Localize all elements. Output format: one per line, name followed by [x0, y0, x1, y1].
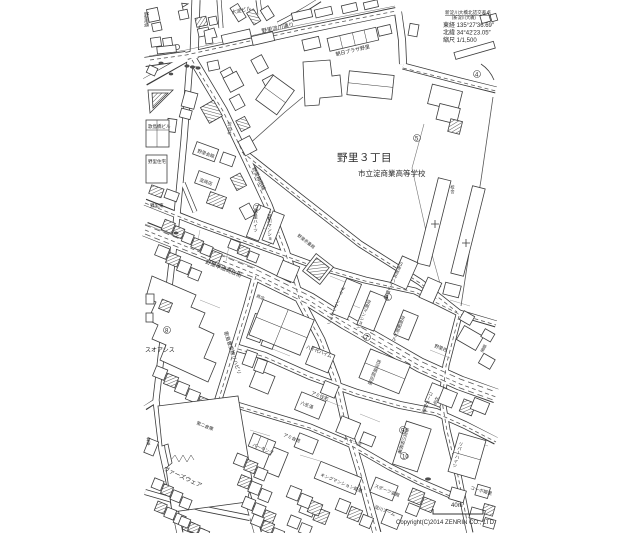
- svg-text:10: 10: [402, 455, 409, 461]
- svg-text:淀川マンション: 淀川マンション: [267, 213, 273, 246]
- svg-text:野里住宅: 野里住宅: [148, 158, 166, 165]
- svg-text:野里東: 野里東: [150, 202, 164, 209]
- svg-text:北緯 34°42′23.05″: 北緯 34°42′23.05″: [443, 29, 492, 37]
- svg-text:校舎: 校舎: [450, 184, 456, 195]
- svg-text:倉庫: 倉庫: [146, 436, 152, 447]
- svg-text:淀川荘: 淀川荘: [227, 121, 233, 136]
- svg-text:歌島橋ビル: 歌島橋ビル: [148, 123, 171, 130]
- svg-text:Copyright(C)2014 ZENRIN CO., L: Copyright(C)2014 ZENRIN CO., LTD.: [396, 520, 496, 526]
- svg-text:市立淀商業高等学校: 市立淀商業高等学校: [358, 168, 426, 178]
- svg-text:縮尺 1/1,500: 縮尺 1/1,500: [443, 36, 477, 44]
- svg-text:スオアシス: スオアシス: [145, 347, 175, 354]
- svg-text:40m: 40m: [451, 503, 463, 509]
- svg-text:東経 135°27′36.69″: 東経 135°27′36.69″: [443, 21, 495, 29]
- svg-text:野里３丁目: 野里３丁目: [337, 152, 392, 164]
- svg-text:(新淀川大橋): (新淀川大橋): [452, 14, 476, 21]
- svg-text:野里通: 野里通: [143, 11, 149, 28]
- svg-text:野里ハイツ: 野里ハイツ: [253, 209, 259, 233]
